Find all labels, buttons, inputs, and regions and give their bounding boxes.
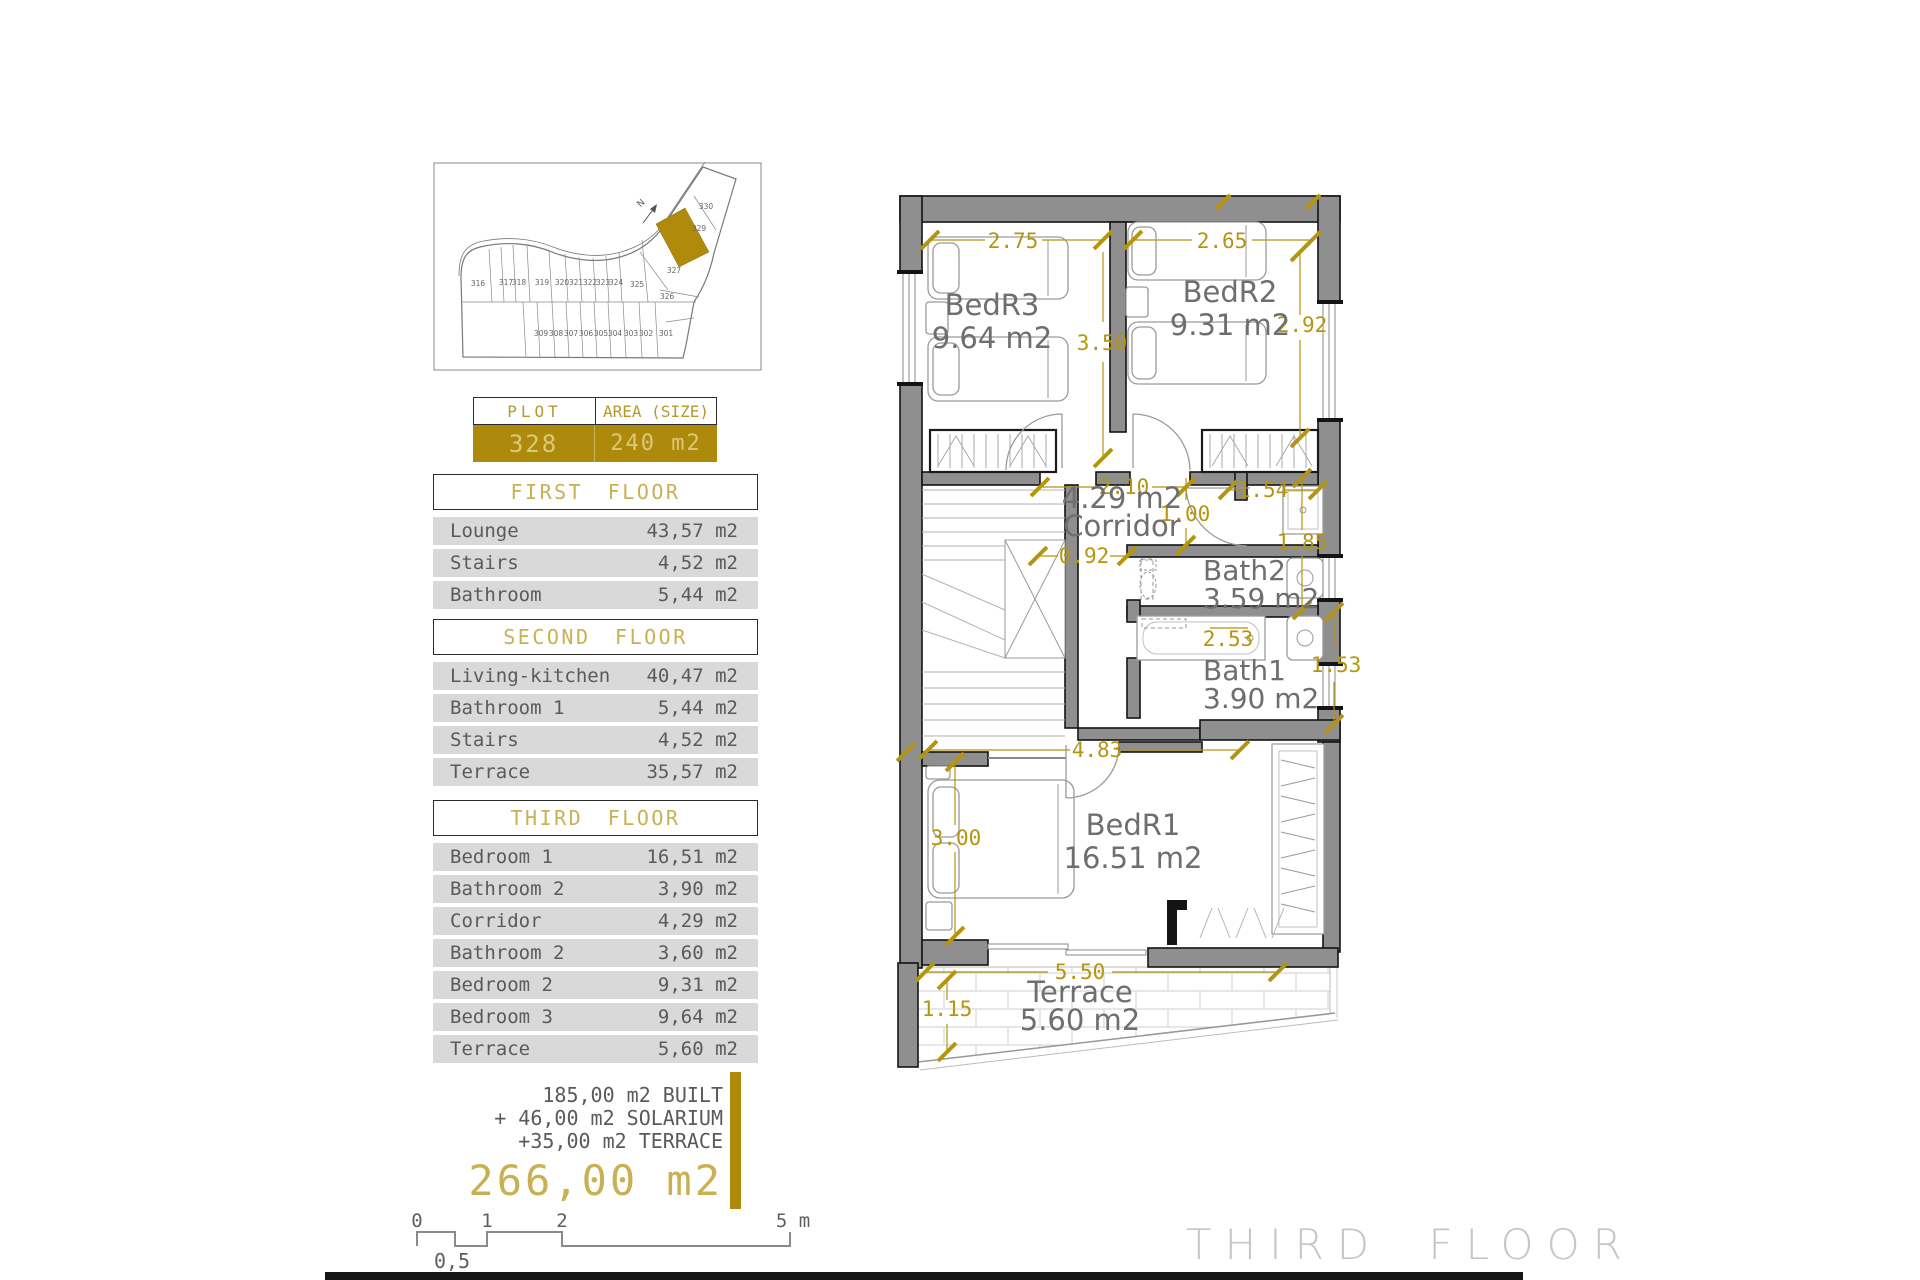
area-summary: 185,00 m2 BUILT + 46,00 m2 SOLARIUM +35,… [433,1084,723,1153]
terrace-area: +35,00 m2 TERRACE [433,1130,723,1153]
svg-text:325: 325 [630,280,645,289]
site-plan-frame [434,163,761,370]
svg-text:1: 1 [481,1210,492,1232]
svg-text:2.53: 2.53 [1203,627,1254,651]
table-row: Bathroom5,44 m2 [433,581,758,609]
bedr2-door-icon [1133,414,1190,470]
svg-text:4.83: 4.83 [1072,738,1123,762]
svg-text:326: 326 [660,292,675,301]
table-row: Corridor4,29 m2 [433,907,758,935]
second-floor-title: SECOND FLOOR [433,619,758,655]
table-row: Bathroom 15,44 m2 [433,694,758,722]
svg-text:0.92: 0.92 [1059,544,1110,568]
svg-text:302: 302 [639,329,654,338]
svg-text:0,5: 0,5 [434,1249,470,1273]
plot-number-cell: 328 [473,425,595,462]
svg-text:303: 303 [624,329,639,338]
svg-text:330: 330 [699,202,714,211]
toilet-bath2-icon [1140,560,1156,598]
first-floor-title: FIRST FLOOR [433,474,758,510]
table-row: Living-kitchen40,47 m2 [433,662,758,690]
plot-area-table: PLOT AREA (SIZE) 328 240 m2 [473,397,717,462]
closet-wall [1167,900,1187,945]
plot-area-cell: 240 m2 [595,425,717,462]
scale-bar-line [417,1232,790,1246]
scale-bar: 0 1 2 5 m 0,5 [400,1205,830,1275]
bath2-door-leaf [1141,559,1153,599]
sheet-title: THIRD FLOOR [1186,1220,1635,1269]
svg-text:BedR3: BedR3 [945,288,1040,322]
svg-text:1.15: 1.15 [922,997,973,1021]
table-row: Bathroom 23,60 m2 [433,939,758,967]
first-floor-table: FIRST FLOOR Lounge43,57 m2 Stairs4,52 m2… [433,474,758,613]
svg-text:329: 329 [692,224,707,233]
svg-text:321: 321 [569,278,584,287]
svg-text:1.53: 1.53 [1311,653,1362,677]
svg-text:318: 318 [512,278,527,287]
bottom-rule [325,1272,1523,1280]
table-row: Bedroom 116,51 m2 [433,843,758,871]
svg-text:BedR1: BedR1 [1086,808,1181,842]
svg-text:9.64 m2: 9.64 m2 [932,321,1053,355]
svg-text:3.50: 3.50 [1077,331,1128,355]
third-floor-title: THIRD FLOOR [433,800,758,836]
floorplan-sheet: 316 317 318 319 320 321 322 323 324 325 … [0,0,1920,1280]
svg-text:324: 324 [609,278,624,287]
svg-text:2: 2 [556,1210,567,1232]
third-floor-table: THIRD FLOOR Bedroom 116,51 m2 Bathroom 2… [433,800,758,1067]
svg-text:3.90 m2: 3.90 m2 [1203,682,1319,715]
svg-text:9.31 m2: 9.31 m2 [1170,308,1291,342]
table-row: Bedroom 29,31 m2 [433,971,758,999]
svg-text:5 m: 5 m [776,1210,810,1232]
table-row: Terrace5,60 m2 [433,1035,758,1063]
svg-text:16.51 m2: 16.51 m2 [1064,841,1203,875]
staircase [922,490,1065,736]
svg-text:305: 305 [594,329,609,338]
svg-text:316: 316 [471,279,486,288]
gold-accent-bar [730,1072,741,1209]
built-area: 185,00 m2 BUILT [433,1084,723,1107]
svg-text:327: 327 [667,266,682,275]
window-left-icon [897,270,923,386]
svg-text:2.75: 2.75 [988,229,1039,253]
table-row: Stairs4,52 m2 [433,726,758,754]
svg-text:1.85: 1.85 [1277,530,1328,554]
table-row: Bathroom 23,90 m2 [433,875,758,903]
svg-text:319: 319 [535,278,550,287]
svg-text:307: 307 [564,329,579,338]
svg-text:0: 0 [411,1210,422,1232]
total-area: 266,00 m2 [383,1156,723,1205]
svg-text:308: 308 [549,329,564,338]
svg-text:320: 320 [555,278,570,287]
svg-text:304: 304 [608,329,623,338]
svg-text:306: 306 [579,329,594,338]
table-row: Stairs4,52 m2 [433,549,758,577]
svg-text:309: 309 [534,329,549,338]
site-plan: 316 317 318 319 320 321 322 323 324 325 … [433,162,763,372]
table-row: Bedroom 39,64 m2 [433,1003,758,1031]
solarium-area: + 46,00 m2 SOLARIUM [433,1107,723,1130]
table-row: Lounge43,57 m2 [433,517,758,545]
svg-text:3.00: 3.00 [931,826,982,850]
svg-text:3.59 m2: 3.59 m2 [1203,582,1319,615]
svg-text:Corridor: Corridor [1063,509,1181,543]
area-header-cell: AREA (SIZE) [595,397,717,425]
svg-text:1.54: 1.54 [1238,478,1289,502]
svg-text:BedR2: BedR2 [1183,275,1278,309]
second-floor-table: SECOND FLOOR Living-kitchen40,47 m2 Bath… [433,619,758,790]
terrace-sliding-door-icon [988,944,1146,955]
scale-labels: 0 1 2 5 m 0,5 [411,1210,810,1273]
svg-text:2.65: 2.65 [1197,229,1248,253]
svg-text:5.60 m2: 5.60 m2 [1020,1003,1141,1037]
svg-text:301: 301 [659,329,674,338]
table-row: Terrace35,57 m2 [433,758,758,786]
wardrobes-top [930,430,1318,472]
plot-header-cell: PLOT [473,397,595,425]
third-floor-plan: 2.75 2.65 3.50 2.92 2.10 1.00 1.54 0.92 … [895,150,1365,1100]
